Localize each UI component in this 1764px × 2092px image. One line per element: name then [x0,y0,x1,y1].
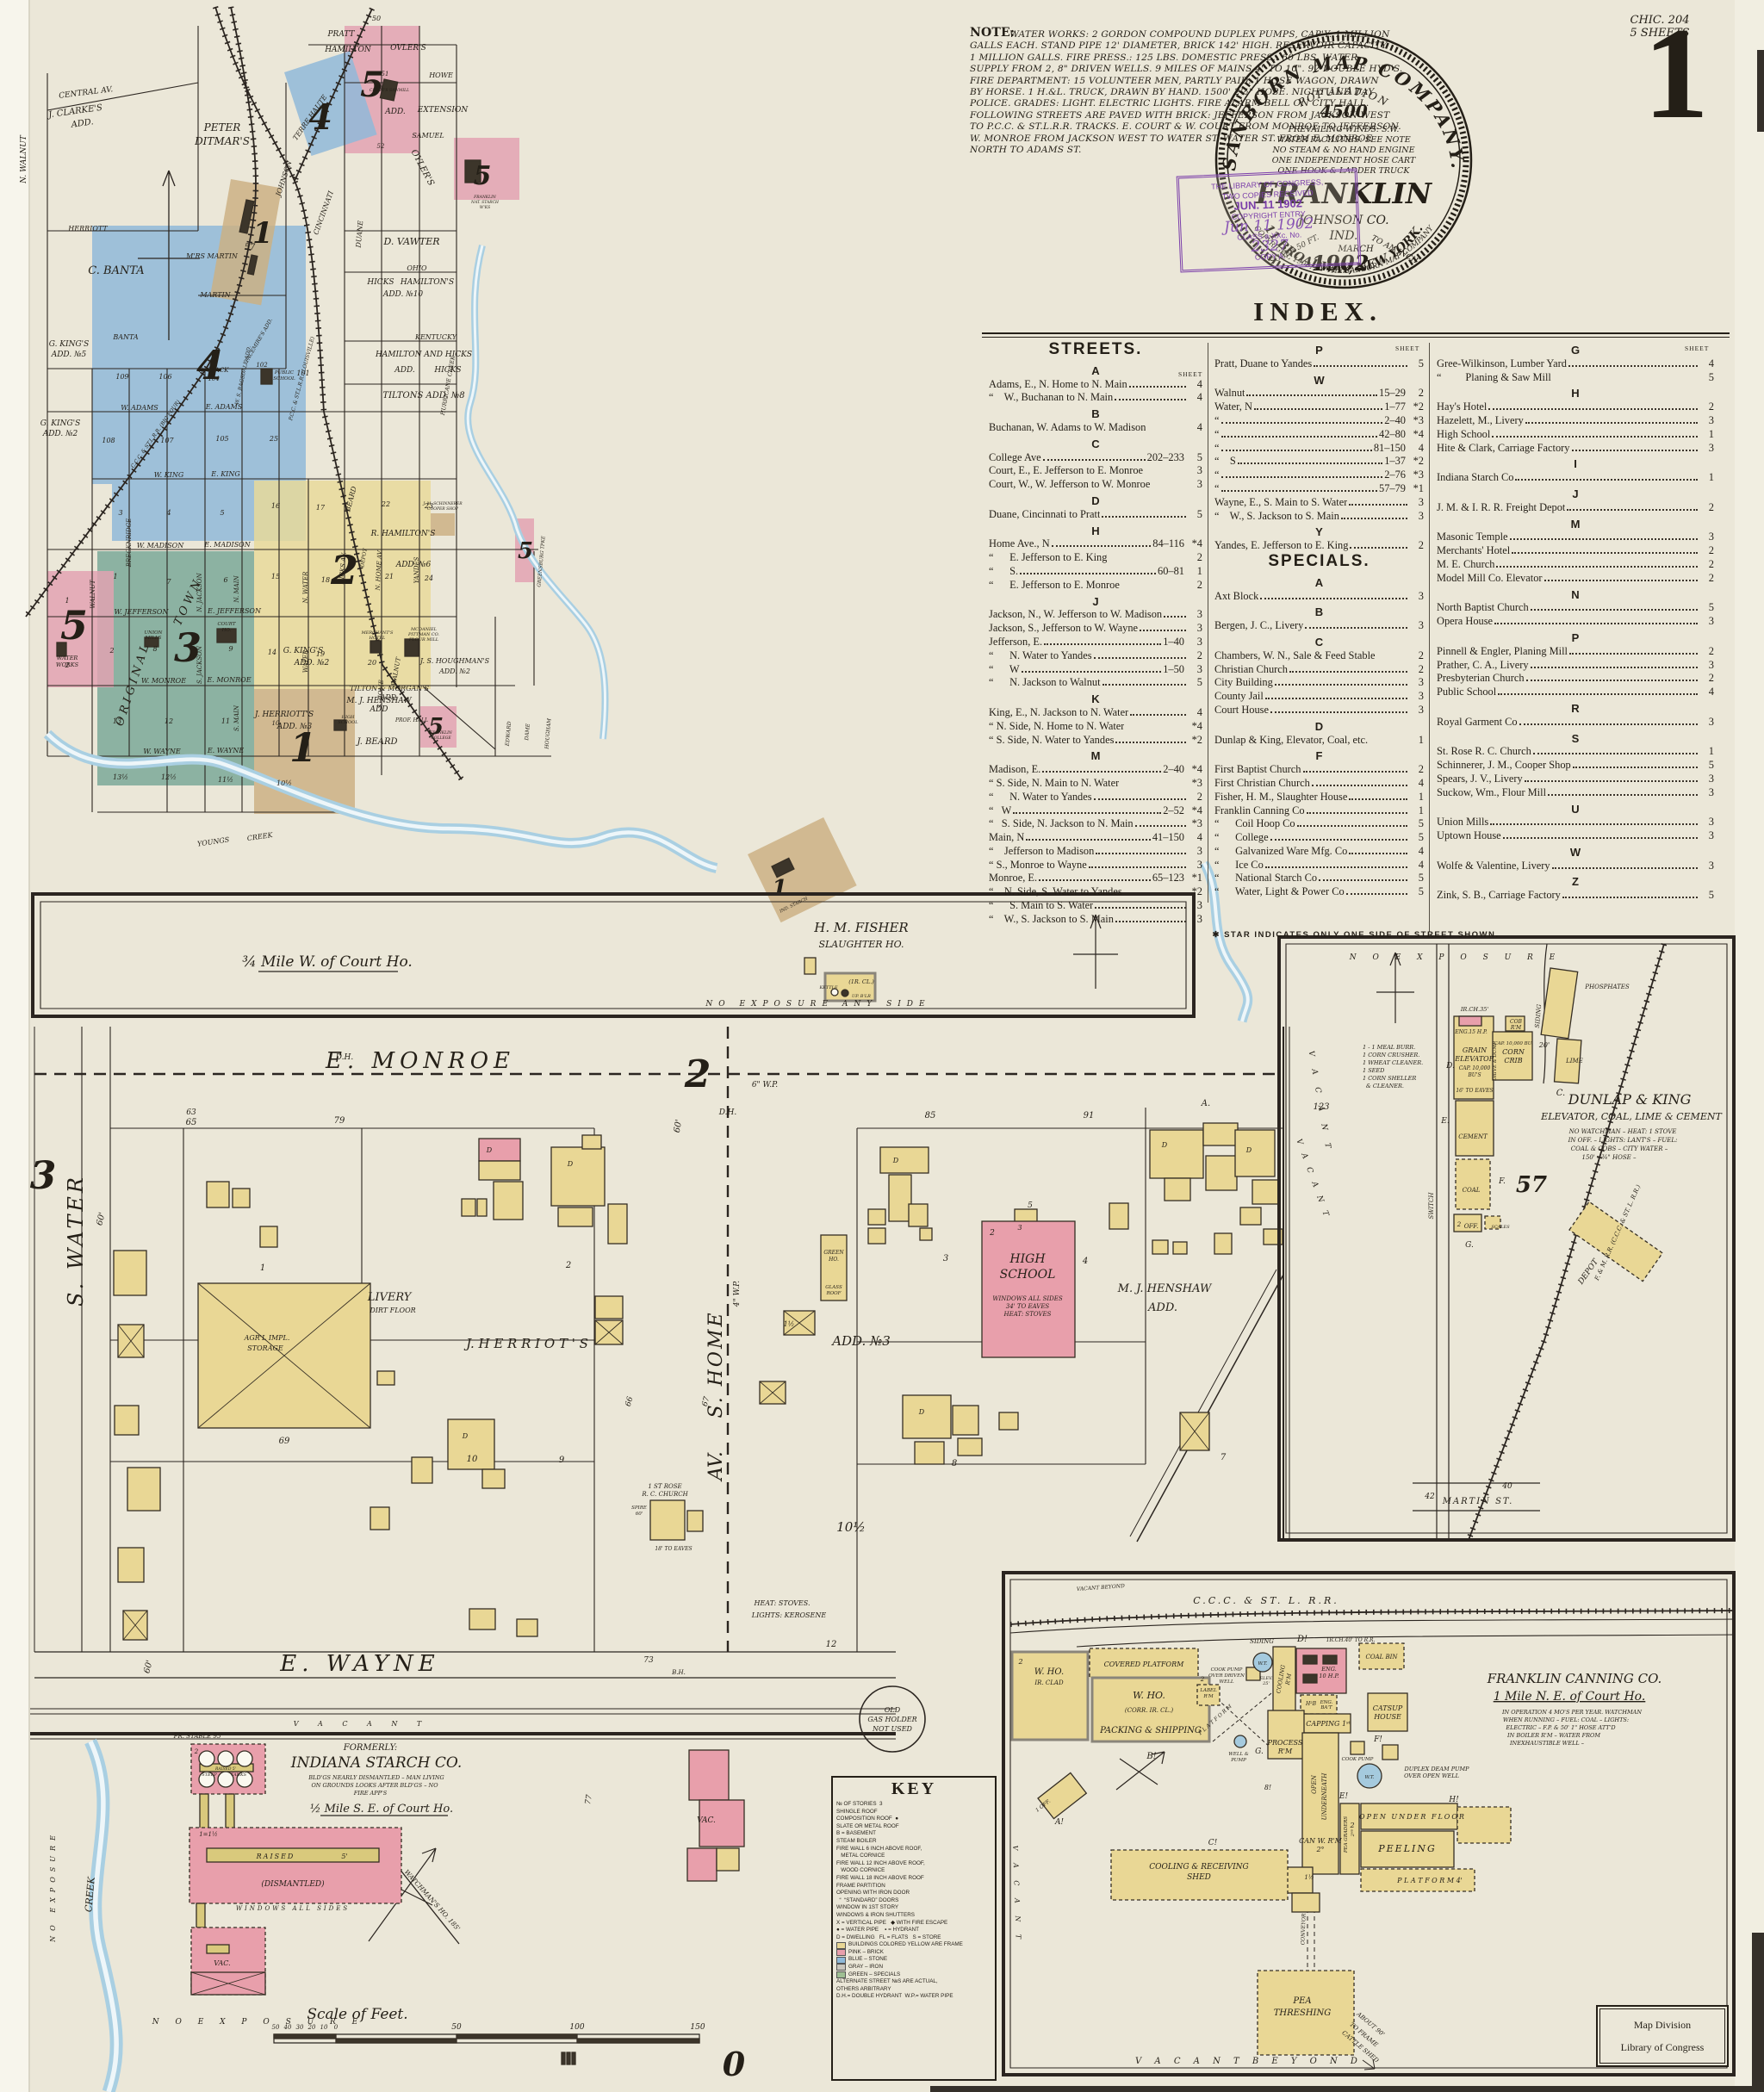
map-label: 3 [118,509,122,517]
index-leader [1221,422,1383,424]
map-label: SCHOOL [273,376,295,382]
index-leader [1044,643,1161,645]
map-label: UNDERNEATH [1321,1772,1328,1821]
building [1150,1130,1203,1178]
north-arrow [1376,953,1414,1023]
map-label: 102 [256,362,268,369]
index-entry-text: “ S. [989,565,1018,579]
index-entry: King, E., N. Jackson to N. Water4 [989,706,1202,720]
map-label: 11½ [218,776,233,784]
key-legend-row: ● = WATER PIPE ▪ = HYDRANT [836,1927,991,1934]
map-label: AV. [705,1451,727,1482]
index-entry: “ W., S. Jackson to S. Main3 [989,913,1202,927]
map-label: J. S. HOUGHMAN'S [419,657,490,665]
index-leader [1115,742,1186,743]
building [953,1406,978,1435]
building [595,1296,623,1319]
map-label: (1R. CL.) [848,978,874,985]
map-label: OYLER'S [409,148,436,188]
building [207,1945,229,1953]
building [1303,1674,1317,1683]
map-label: JOHNSON [274,159,294,199]
index-entry: “ Coil Hoop Co5 [1214,817,1424,831]
index-entry: “ W1–503 [989,663,1202,677]
index-letter: G [1437,341,1714,357]
index-entry: Pratt, Duane to Yandes5 [1214,357,1424,371]
map-label: OLD [885,1706,901,1714]
map-label: IR.CH.35' [1460,1006,1489,1013]
building [196,1903,205,1927]
map-label: M. J. HENSHAW [1117,1282,1213,1295]
index-entry-text: Royal Garment Co [1437,716,1518,729]
index-letter: D [1214,717,1424,734]
map-path [1137,1275,1283,1542]
index-entry-text: Court, E., E. Jefferson to E. Monroe [989,464,1143,478]
map-label: 2° [1315,1846,1324,1853]
map-label: 1 CORN SHELLER [1363,1075,1416,1082]
index-entry-text: Madison, E. [989,763,1040,777]
starch-title: FORMERLY: [343,1743,397,1753]
index-number-range: 65–123 [1152,872,1188,885]
key-legend-row: FIRE WALL 6 INCH ABOVE ROOF, [836,1846,991,1853]
building [477,1199,487,1216]
index-number-range: 81–150 [1374,442,1409,456]
map-label: 1 [113,573,117,580]
building [457,2034,577,2039]
building [517,1619,537,1636]
index-divider [1208,343,1208,903]
map-label: NAT. STARCH [470,200,499,205]
index-sheet-number: *4 [1188,720,1202,734]
map-label: HERRIOTT [67,225,108,233]
index-entry-text: “ S. Side, N. Jackson to N. Main [989,817,1134,831]
map-label: D [918,1408,925,1416]
index-sheet-number: 3 [1409,590,1424,604]
map-label: 9 [559,1456,565,1465]
map-label: HICKS [366,278,394,287]
index-entry-text: Walnut [1214,387,1245,400]
map-label: YOUNGS [196,835,230,847]
index-entry: Jefferson, E.1–403 [989,636,1202,649]
map-label: W'KS [480,205,490,210]
index-entry-text: “ W [989,663,1020,677]
index-sheet-number: 2 [1409,763,1424,777]
building [804,958,816,974]
key-legend-row: WINDOWS & IRON SHUTTERS [836,1912,991,1920]
map-label: TANKS [231,1772,247,1778]
building [199,1751,214,1766]
index-column-specials: PPratt, Duane to Yandes5WWalnut15–292Wat… [1214,341,1424,899]
index-sheet-number: 2 [1699,572,1714,586]
map-label: SCALES [1491,1225,1510,1230]
map-label: 20' [1538,1041,1550,1049]
map-label: 15 [271,573,280,580]
index-letter: H [989,522,1202,538]
index-sheet-number: *4 [1188,804,1202,818]
map-label: OVLER'S [390,44,426,53]
map-label: WELL [1220,1679,1234,1685]
map-label: SHED [1187,1873,1211,1882]
index-entry-text: “ Water, Light & Power Co [1214,885,1345,899]
index-leader [1305,627,1407,629]
map-label: 25' [1262,1681,1270,1686]
map-label: MARTIN ST. [1442,1497,1514,1506]
index-entry-text: “ [1214,482,1220,496]
hurricane-creek [468,245,605,739]
index-leader [1102,684,1186,686]
index-number-range: 2–76 [1384,469,1409,482]
map-division-stamp: Map Division Library of Congress [1596,2005,1729,2067]
map-label: PROF. HALL [394,717,428,723]
index-sheet-number: 5 [1409,357,1424,371]
index-entry-text: “ S [1214,455,1236,469]
map-label: 14 [268,649,276,656]
key-legend-row: FIRE WALL 18 INCH ABOVE ROOF [836,1875,991,1883]
map-label: WELL & [1228,1752,1249,1757]
index-sheet-number: 3 [1409,496,1424,510]
map-label: ELECTRIC – F.P. & 50' 1" HOSE ATT'D [1505,1724,1616,1731]
index-entry-text: “ S. Side, N. Main to N. Water [989,777,1119,791]
index-letter: F [1214,747,1424,763]
map-label: 5 [220,509,224,517]
map-label: PUMP [1230,1758,1246,1763]
index-entry-text: Home Ave., N [989,537,1050,551]
map-label: 150' – ¾" HOSE – [1582,1154,1637,1161]
map-label: BRECKNRIDGE [126,518,133,568]
index-leader [1265,866,1407,868]
index-leader [1221,490,1378,492]
index-leader [1510,538,1698,540]
index-entry: Monroe, E.65–123*1 [989,872,1202,885]
index-leader [1043,459,1146,461]
index-leader [1270,711,1407,713]
map-label: V A C A N T [1011,1846,1022,1945]
index-entry: “ W2–52*4 [989,804,1202,818]
map-label: D [1245,1146,1252,1154]
building [127,1468,160,1511]
index-entry-text: Hay's Hotel [1437,400,1487,414]
index-entry: County Jail3 [1214,690,1424,704]
building [261,369,272,384]
index-entry-text: “ W., S. Jackson to S. Main [989,913,1114,927]
map-label: 2 [1457,1221,1462,1228]
index-leader [1490,823,1698,825]
map-label: PROCESS [1267,1739,1303,1747]
index-entry: Wayne, E., S. Main to S. Water3 [1214,496,1424,510]
map-label: FRANKLIN [473,195,497,200]
index-entry-text: “ W., Buchanan to N. Main [989,391,1113,405]
index-sheet-number: 3 [1699,773,1714,786]
map-label: 63 [186,1108,196,1117]
index-leader [1238,462,1382,464]
map-label: ADD. [384,108,406,116]
map-label: D [567,1160,574,1168]
key-legend-row: OTHERS ARBITRARY [836,1986,991,1994]
map-label: ¾ Mile W. of Court Ho. [242,953,413,971]
index-section-header: STREETS. [989,341,1202,362]
map-division-line: Map Division [1599,2014,1725,2036]
index-number-range: 42–80 [1379,428,1409,442]
map-label: COAL [1463,1187,1481,1194]
map-label: 18 [321,576,330,584]
map-label: 66 [624,1395,636,1407]
map-label: J. HERRIOTT'S [253,711,314,719]
index-entry-text: First Baptist Church [1214,763,1301,777]
index-sheet-number: 1 [1409,804,1424,818]
map-label: 42 [1424,1493,1435,1501]
index-number-range: 1–37 [1384,455,1409,469]
index-entry: Gree-Wilkinson, Lumber Yard4 [1437,357,1714,371]
map-label: ELEVATOR [1454,1055,1494,1063]
index-entry-text: M. E. Church [1437,558,1494,572]
map-label: VACANT BEYOND [1077,1583,1126,1592]
index-letter: C [989,435,1202,451]
index-leader [1289,671,1407,673]
key-legend-row: BUILDINGS COLORED YELLOW ARE FRAME [836,1941,991,1949]
index-sheet-number: *3 [1188,777,1202,791]
building [1351,1741,1364,1754]
map-label: TILTONS ADD. №8 [382,391,464,400]
key-legend-color-chip [836,1964,846,1971]
index-entry-text: Franklin Canning Co [1214,804,1305,818]
index-number-range: 15–29 [1379,387,1409,400]
index-section-header: SPECIALS. [1214,553,1424,574]
index-entry: Court, E., E. Jefferson to E. Monroe3 [989,464,1202,478]
index-entry: J. M. & I. R. R. Freight Depot2 [1437,501,1714,515]
map-label: N. MAIN [233,575,240,604]
index-sheet-number: *4 [1409,428,1424,442]
index-leader [1221,450,1372,451]
map-label: J. BEARD [355,737,397,747]
index-leader [1525,422,1698,424]
map-label: UP. B'LR [852,994,871,999]
index-entry-text: “ [1214,442,1220,456]
index-entry-text: “ W [989,804,1011,818]
index-entry-text: Monroe, E. [989,872,1037,885]
map-label: 85 [925,1111,936,1120]
index-entry-text: Presbyterian Church [1437,672,1525,686]
index-sheet-number: 1 [1699,428,1714,442]
sheet-2-numeral: 2 [330,547,358,593]
index-entry-text: “ [1214,428,1220,442]
index-entry-text: “ Coil Hoop Co [1214,817,1295,831]
map-label: 73 [643,1656,654,1665]
index-entry: “ Water, Light & Power Co5 [1214,885,1424,899]
map-label: 52 [377,143,385,150]
index-letter: P [1214,341,1424,357]
map-label: 10 [272,720,280,727]
index-entry-text: “ Planing & Saw Mill [1437,371,1551,385]
index-sheet-number: 4 [1699,686,1714,699]
building [1292,1893,1320,1912]
map-label: BA'T [1320,1705,1332,1710]
index-entry-text: “ College [1214,831,1269,845]
index-entry-text: County Jail [1214,690,1264,704]
building [377,1371,394,1385]
building [1240,1207,1261,1225]
building [689,1750,729,1800]
index-letter: Z [1437,872,1714,889]
map-label: A. [1201,1099,1210,1108]
map-label: 1 [772,876,787,902]
index-leader [1341,518,1407,519]
starch-main-building [189,1828,401,1903]
index-entry: “ N. Side, N. Home to N. Water*4 [989,720,1202,734]
index-entry-text: Hazelett, M., Livery [1437,414,1524,428]
index-letter: S [1437,729,1714,746]
map-label: PEELING [1377,1843,1437,1854]
index-sheet-number: 3 [1409,704,1424,717]
map-label: ADD [370,705,388,714]
map-label: N. WALNUT [20,134,28,184]
map-label: 10 H.P. [1319,1673,1339,1679]
index-sheet-number: 4 [1188,421,1202,435]
map-label: ADD. №2 [294,659,330,667]
building [469,1609,495,1630]
index-letter: D [989,492,1202,508]
key-legend-row: D.H.= DOUBLE HYDRANT W.P.= WATER PIPE [836,1993,991,2001]
index-letter: M [1437,515,1714,531]
index-entry: “ S., Monroe to Wayne3 [989,859,1202,872]
index-entry: Pinnell & Engler, Planing Mill2 [1437,645,1714,659]
map-label: V A C A N T B E Y O N D [1135,2057,1363,2066]
map-label: 2 [989,1229,995,1238]
index-letter: W [1437,843,1714,860]
building [567,2052,570,2064]
index-entry: Royal Garment Co3 [1437,716,1714,729]
index-leader [1349,504,1407,506]
index-entry-text: “ Jefferson to Madison [989,845,1094,859]
map-label: DUANE [355,220,365,249]
note-title: NOTE: [970,28,1015,39]
index-sheet-number: 5 [1409,817,1424,831]
map-label: W.T. [1364,1775,1374,1780]
index-sheet-number: 5 [1409,885,1424,899]
map-label: 12 [165,717,173,725]
map-label: 20 [307,2024,316,2031]
index-entry-text: “ N. Water to Yandes [989,649,1092,663]
library-of-congress-stamp: THE LIBRARY OF CONGRESS, TWO COPIES RECE… [1177,168,1362,272]
index-leader [1254,408,1382,410]
map-label: CATSUP [1373,1704,1403,1712]
index-entry-text: Model Mill Co. Elevator [1437,572,1543,586]
map-label: SIDING [1534,1003,1543,1028]
index-leader [1350,547,1407,549]
index-star-note: ✱ STAR INDICATES ONLY ONE SIDE OF STREET… [982,930,1730,940]
index-leader [1519,723,1698,725]
map-label: ON GROUNDS LOOKS AFTER BLD'GS – NO [311,1782,438,1789]
map-label: 34' TO EAVES [1006,1303,1050,1310]
map-label: ADD. №6 [395,561,432,569]
building [572,2052,575,2064]
map-label: ADD. [70,117,94,130]
index-entry-text: “ Galvanized Ware Mfg. Co [1214,845,1347,859]
map-label: 5 [1028,1201,1033,1210]
map-label: 79 [334,1116,345,1126]
map-label: FIRE APP'S [353,1790,388,1797]
index-leader [1020,573,1156,574]
map-label: J. H E R R I O T ' S [463,1336,588,1351]
map-label: DUPLEX DEAM PUMP [1404,1766,1470,1772]
sheet-1-numeral: 1 [289,724,317,771]
index-sheet-number: *2 [1409,455,1424,469]
index-sheet-number: 3 [1409,676,1424,690]
map-label: 50 [372,15,381,22]
index-number-range: 1–50 [1163,663,1188,677]
index-entry: Zink, S. B., Carriage Factory5 [1437,889,1714,903]
map-label: 12½ [161,773,177,781]
map-label: GAS HOLDER [867,1716,916,1723]
map-label: SLAUGHTER HO. [818,939,904,950]
index-entry: Walnut15–292 [1214,387,1424,400]
building [1109,1203,1128,1229]
map-label: D [462,1432,469,1440]
key-legend-row: METAL CORNICE [836,1853,991,1860]
map-label: B.H. [671,1669,686,1676]
index-leader [1221,476,1383,478]
index-entry: Suckow, Wm., Flour Mill3 [1437,786,1714,800]
index-sheet-number: 3 [1409,619,1424,633]
map-label: WALNUT [90,579,96,609]
index-entry: “ S. Side, N. Main to N. Water*3 [989,777,1202,791]
index-entry-text: Duane, Cincinnati to Pratt [989,508,1100,522]
index-letter: J [989,593,1202,609]
map-label: LABEL [1199,1688,1217,1693]
building [1252,1180,1278,1204]
map-label: W. HO. [1034,1667,1064,1677]
map-label: FLOUR MILL [408,637,439,642]
index-sheet-number: 3 [1188,899,1202,913]
index-leader [1498,693,1698,695]
sheet-5-numeral: 5 [60,602,88,649]
index-entry-text: Union Mills [1437,816,1488,829]
index-sheet-number: 3 [1188,478,1202,492]
index-entry: North Baptist Church5 [1437,601,1714,615]
map-label: PEA GRADERS [1344,1816,1349,1854]
index-sheet-number: 2 [1699,672,1714,686]
map-label: CONVEYOR [1300,1913,1307,1946]
building [494,1182,523,1220]
index-letter: N [1437,586,1714,602]
index-leader [1531,667,1698,668]
map-label: CAP. 10,000 [1459,1065,1491,1071]
map-label: 6" W.P. [752,1081,778,1089]
index-entry: Masonic Temple3 [1437,531,1714,544]
index-leader [1096,853,1186,854]
map-label: COOK PUMP [1211,1667,1243,1673]
index-letter: C [1214,633,1424,649]
map-path [468,245,605,739]
key-legend-row: D = DWELLING FL = FLATS S = STORE [836,1934,991,1942]
map-label: STORAGE [247,1344,283,1352]
e-wayne-label: E. WAYNE [279,1651,440,1677]
index-entry-text: “ E. Jefferson to E. Monroe [989,579,1120,593]
map-label: OFF. [1464,1223,1479,1230]
index-sheet-number: 3 [1699,659,1714,673]
map-label: 2 [565,1261,571,1270]
map-label: 1½ [1304,1874,1314,1881]
index-entry: “ W., Buchanan to N. Main4 [989,391,1202,405]
map-label: F! [1373,1735,1382,1744]
map-label: 18' TO EAVES [655,1546,692,1552]
index-leader [1567,509,1698,511]
index-sheet-number: 1 [1188,565,1202,579]
map-label: CENTRAL AV. [59,85,114,101]
map-label: 17 [316,504,326,512]
index-leader [1533,753,1698,754]
map-label: W. MONROE [141,677,186,685]
index-entry: Merchants' Hotel2 [1437,544,1714,558]
